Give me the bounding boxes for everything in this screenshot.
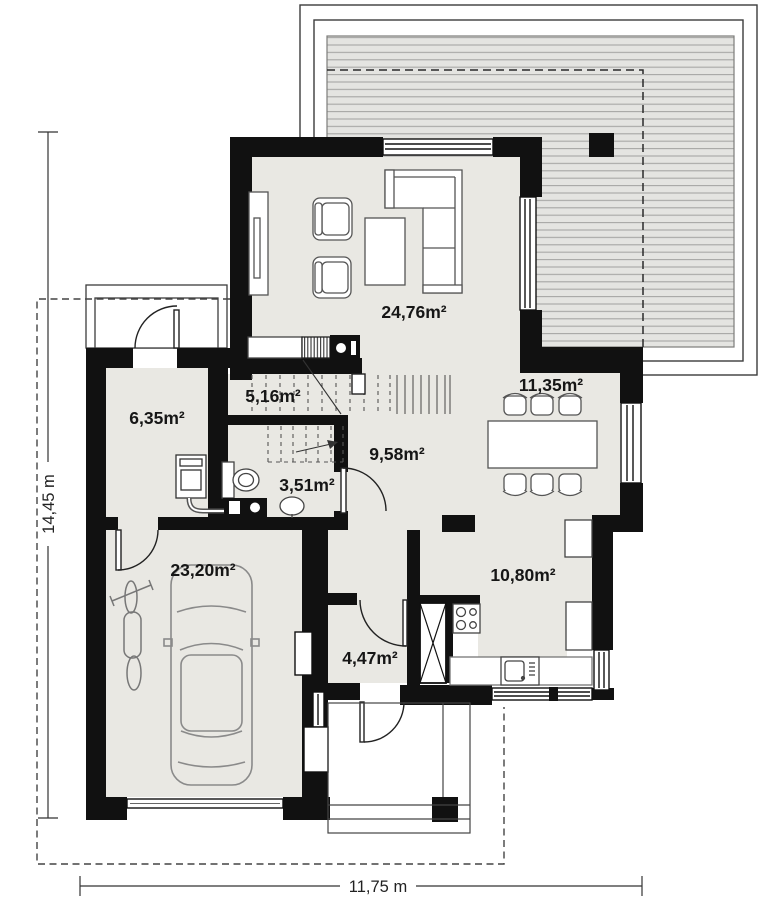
label-bathroom-area: 3,51m² <box>279 475 335 495</box>
wall-corridor-east <box>407 530 420 685</box>
wall-garage-top-main <box>158 517 345 530</box>
side-entry-canopy <box>86 285 227 348</box>
window-kitchen-south <box>492 687 592 701</box>
wall-dining-kitchen-step <box>592 515 643 532</box>
window-living-north <box>383 139 493 155</box>
dining-furniture <box>488 394 597 496</box>
wall-west-exterior <box>86 348 106 820</box>
fireplace <box>330 335 360 360</box>
sideboard <box>248 337 302 358</box>
label-garage-area: 23,20m² <box>170 560 235 580</box>
wall-utility-top-east <box>177 348 230 368</box>
label-dimension-horizontal: 11,75 m <box>349 878 407 896</box>
wall-living-top-right <box>493 137 542 157</box>
wall-garage-south-west <box>86 797 127 820</box>
wall-dining-east-north <box>620 373 643 403</box>
label-kitchen-area: 10,80m² <box>490 565 555 585</box>
label-hall-area: 9,58m² <box>369 444 425 464</box>
fridge <box>565 520 592 557</box>
label-vestibule-area: 4,47m² <box>342 648 398 668</box>
dining-chairs-bottom <box>503 474 582 496</box>
wall-living-east-lower <box>520 310 542 347</box>
window-dining-east <box>621 403 641 483</box>
floor-plan-page: 24,76m² 11,35m² 10,80m² 9,58m² 5,16m² 3,… <box>0 0 774 900</box>
label-stairs-area: 5,16m² <box>245 386 301 406</box>
wall-dining-east-south <box>620 483 643 515</box>
window-living-east <box>520 197 536 310</box>
armchair-2 <box>313 257 351 298</box>
armchair-1 <box>313 198 352 240</box>
utility-black-unit <box>223 498 267 517</box>
dining-table <box>488 421 597 468</box>
label-dining-area: 11,35m² <box>519 375 583 395</box>
tv-cabinet <box>249 192 268 295</box>
canopy-inner-step <box>95 298 218 348</box>
wall-terrace-pillar <box>589 133 614 157</box>
dining-chairs-top <box>503 394 582 416</box>
label-living-area: 24,76m² <box>381 302 446 322</box>
wall-garage-top-west <box>106 517 118 530</box>
label-dimension-vertical: 14,45 m <box>40 474 58 534</box>
garage-door <box>127 799 283 808</box>
floor-plan-canvas: 24,76m² 11,35m² 10,80m² 9,58m² 5,16m² 3,… <box>0 0 774 900</box>
wall-porch-column <box>432 797 458 822</box>
wall-niche-north <box>295 632 312 675</box>
chimney-hatch <box>302 337 330 358</box>
floor-corridor <box>328 530 407 593</box>
chimney-shaft <box>420 603 446 683</box>
wall-living-top-left <box>230 137 383 157</box>
wall-kitchen-east <box>592 530 613 650</box>
counter-east <box>566 602 592 650</box>
wall-kitchen-south-west <box>400 685 492 705</box>
tv-icon <box>254 218 260 278</box>
coffee-table <box>365 218 405 285</box>
floor-kitchen-s <box>478 633 567 657</box>
window-porch-west <box>313 692 324 727</box>
wall-stairs-bath <box>228 415 345 425</box>
floor-garage-door-gap <box>118 517 158 530</box>
window-mullion <box>549 687 558 701</box>
door-vestibule-porch <box>360 702 404 742</box>
stairs-newel-pier <box>352 374 365 394</box>
window-kitchen-east <box>594 650 609 690</box>
stove <box>453 604 480 633</box>
wall-hall-kitchen-stub <box>442 515 475 532</box>
wall-living-south-stub <box>230 358 362 374</box>
floor-vestibule-door-gap <box>357 593 407 605</box>
wall-dining-top <box>520 347 643 373</box>
wall-living-east-upper <box>520 157 542 197</box>
wall-niche-south <box>304 727 328 772</box>
wall-garage-south-east <box>283 797 330 820</box>
label-utility-area: 6,35m² <box>129 408 185 428</box>
kitchen-sink <box>501 657 539 685</box>
